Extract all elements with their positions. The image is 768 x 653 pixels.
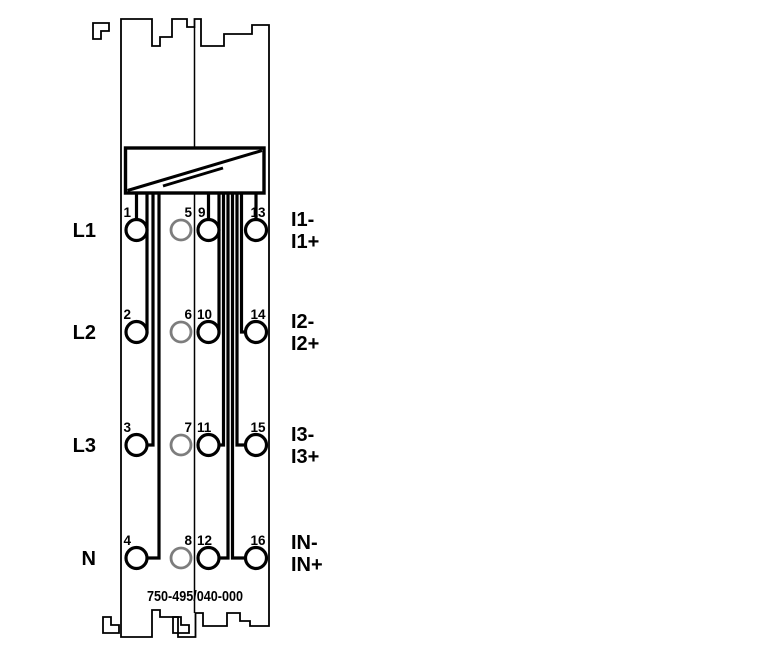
terminal-14-contact: [246, 322, 267, 343]
terminal-9-contact: [198, 220, 219, 241]
label-in-plus: IN+: [291, 554, 323, 576]
terminal-16-contact: [246, 548, 267, 569]
terminal-10-contact: [198, 322, 219, 343]
unconnected-terminals: [171, 220, 191, 568]
terminal-11-contact: [198, 435, 219, 456]
label-l3: L3: [73, 435, 96, 457]
terminal-13-contact: [246, 220, 267, 241]
din-clip-top-left-icon: [93, 23, 109, 39]
terminal-number-5: 5: [184, 205, 192, 220]
label-n: N: [82, 548, 96, 570]
wire-terminal-14: [242, 193, 250, 332]
wire-terminal-2: [142, 193, 147, 332]
terminal-number-12: 12: [197, 533, 212, 548]
terminal-3-contact: [126, 435, 147, 456]
din-clip-bottom-middle-icon: [173, 617, 189, 633]
label-l1: L1: [73, 220, 96, 242]
terminal-number-10: 10: [197, 307, 212, 322]
label-i3-plus: I3+: [291, 446, 319, 468]
terminal-number-7: 7: [184, 420, 192, 435]
label-i1-plus: I1+: [291, 231, 319, 253]
phase-labels: L1 L2 L3 N: [73, 220, 96, 570]
terminal-number-13: 13: [250, 205, 266, 220]
label-i3-minus: I3-: [291, 424, 314, 446]
din-clip-bottom-left-icon: [103, 617, 119, 633]
terminal-1-contact: [126, 220, 147, 241]
terminal-4-contact: [126, 548, 147, 569]
wiring-diagram-page: 1 2 3 4 5 6 7 8 9 10 11 12 13 14 15 16 L…: [0, 0, 768, 653]
current-input-labels: I1- I1+ I2- I2+ I3- I3+ IN- IN+: [291, 209, 323, 576]
label-i2-plus: I2+: [291, 333, 319, 355]
terminal-15-contact: [246, 435, 267, 456]
label-i2-minus: I2-: [291, 311, 314, 333]
terminal-number-6: 6: [184, 307, 192, 322]
label-l2: L2: [73, 322, 96, 344]
wire-terminal-10: [213, 193, 219, 332]
terminal-number-2: 2: [123, 307, 131, 322]
transducer-symbol: [126, 148, 265, 193]
terminal-7-contact: [171, 435, 191, 455]
terminal-5-contact: [171, 220, 191, 240]
part-number: 750-495/040-000: [147, 589, 243, 605]
wire-terminal-4: [142, 193, 159, 558]
terminal-number-9: 9: [198, 205, 206, 220]
terminal-8-contact: [171, 548, 191, 568]
terminal-number-8: 8: [184, 533, 192, 548]
terminal-number-14: 14: [250, 307, 266, 322]
terminal-number-3: 3: [123, 420, 131, 435]
internal-wires: [137, 193, 257, 558]
terminal-6-contact: [171, 322, 191, 342]
label-in-minus: IN-: [291, 532, 318, 554]
terminal-number-15: 15: [250, 420, 266, 435]
terminal-number-1: 1: [123, 205, 131, 220]
terminal-2-contact: [126, 322, 147, 343]
terminal-12-contact: [198, 548, 219, 569]
wiring-diagram: 1 2 3 4 5 6 7 8 9 10 11 12 13 14 15 16 L…: [0, 0, 768, 653]
terminal-number-11: 11: [197, 420, 212, 435]
terminal-number-4: 4: [123, 533, 131, 548]
terminal-number-16: 16: [250, 533, 266, 548]
label-i1-minus: I1-: [291, 209, 314, 231]
